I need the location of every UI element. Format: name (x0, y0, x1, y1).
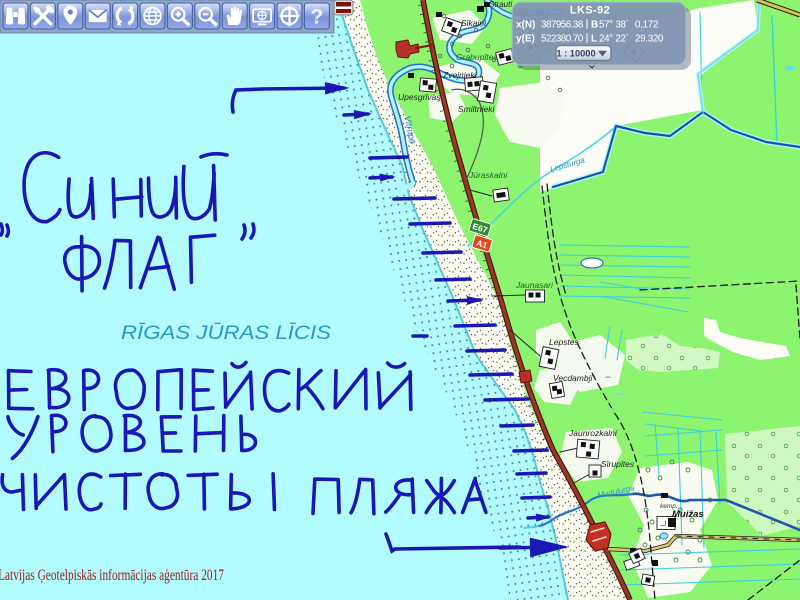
svg-text:Zvejnieki: Zvejnieki (442, 70, 478, 80)
svg-text:y(E): y(E) (516, 34, 535, 45)
svg-text:Grabupītes: Grabupītes (456, 52, 498, 62)
svg-text:LKS-92: LKS-92 (570, 5, 610, 17)
svg-text:x(N): x(N) (516, 20, 535, 31)
svg-text:kemp.: kemp. (660, 503, 678, 510)
svg-text:L: L (591, 34, 597, 45)
svg-text:24° 22`: 24° 22` (599, 34, 629, 45)
svg-text:Lepstes: Lepstes (549, 337, 580, 347)
svg-text:387956.38: 387956.38 (541, 20, 584, 31)
svg-text:Jaunasari: Jaunasari (515, 280, 554, 290)
svg-text:?: ? (310, 4, 323, 28)
svg-text:522380.70: 522380.70 (541, 34, 584, 45)
svg-text:Vecdambji: Vecdambji (553, 373, 593, 383)
svg-text:B: B (591, 20, 598, 31)
svg-text:Latvijas Ģeotelpiskās informāc: Latvijas Ģeotelpiskās informācijas aģent… (0, 567, 224, 584)
svg-text:RĪGAS JŪRAS LĪCIS: RĪGAS JŪRAS LĪCIS (121, 321, 331, 344)
svg-text:57° 38`: 57° 38` (599, 20, 629, 31)
svg-text:0.172: 0.172 (635, 20, 658, 31)
svg-text:Upesgrīvas: Upesgrīvas (398, 92, 441, 102)
svg-text:Strauti: Strauti (489, 0, 512, 9)
svg-text:Muižas: Muižas (672, 509, 704, 520)
svg-text:Smiltnieki: Smiltnieki (458, 104, 495, 114)
svg-text:Sīkaiņi: Sīkaiņi (461, 18, 487, 28)
svg-text:1 : 10000: 1 : 10000 (556, 49, 595, 59)
svg-text:29.320: 29.320 (635, 34, 664, 45)
svg-text:Sīrupītes: Sīrupītes (601, 459, 635, 469)
svg-text:Jaunrozkalni: Jaunrozkalni (568, 428, 618, 438)
svg-text:Jūraskalni: Jūraskalni (468, 170, 508, 180)
